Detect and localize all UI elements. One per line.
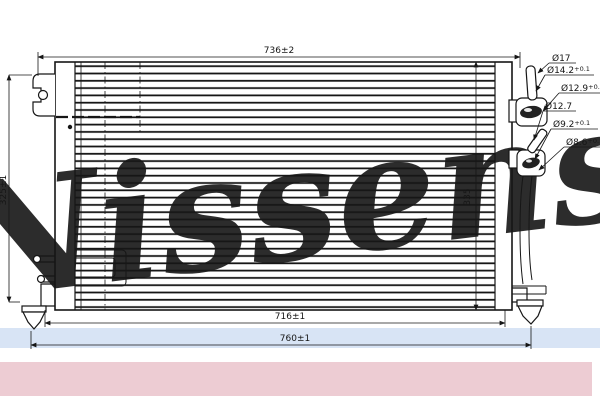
- footer-pink-strip: [0, 362, 592, 396]
- dim-text-bottom-outer: 760±1: [280, 334, 310, 344]
- technical-drawing-page: Nissens: [0, 0, 600, 400]
- label-port-d17: Ø17: [552, 53, 571, 64]
- label-port-d12-7: Ø12.7: [545, 101, 572, 112]
- dim-text-left-height: 325±1: [0, 175, 9, 205]
- dim-text-bottom-inner: 716±1: [275, 312, 305, 322]
- condenser-drawing: Nissens: [0, 0, 600, 400]
- dim-text-right-height: 335: [463, 188, 473, 205]
- dim-text-top-width: 736±2: [264, 46, 294, 56]
- core-tube-fins: [75, 63, 495, 309]
